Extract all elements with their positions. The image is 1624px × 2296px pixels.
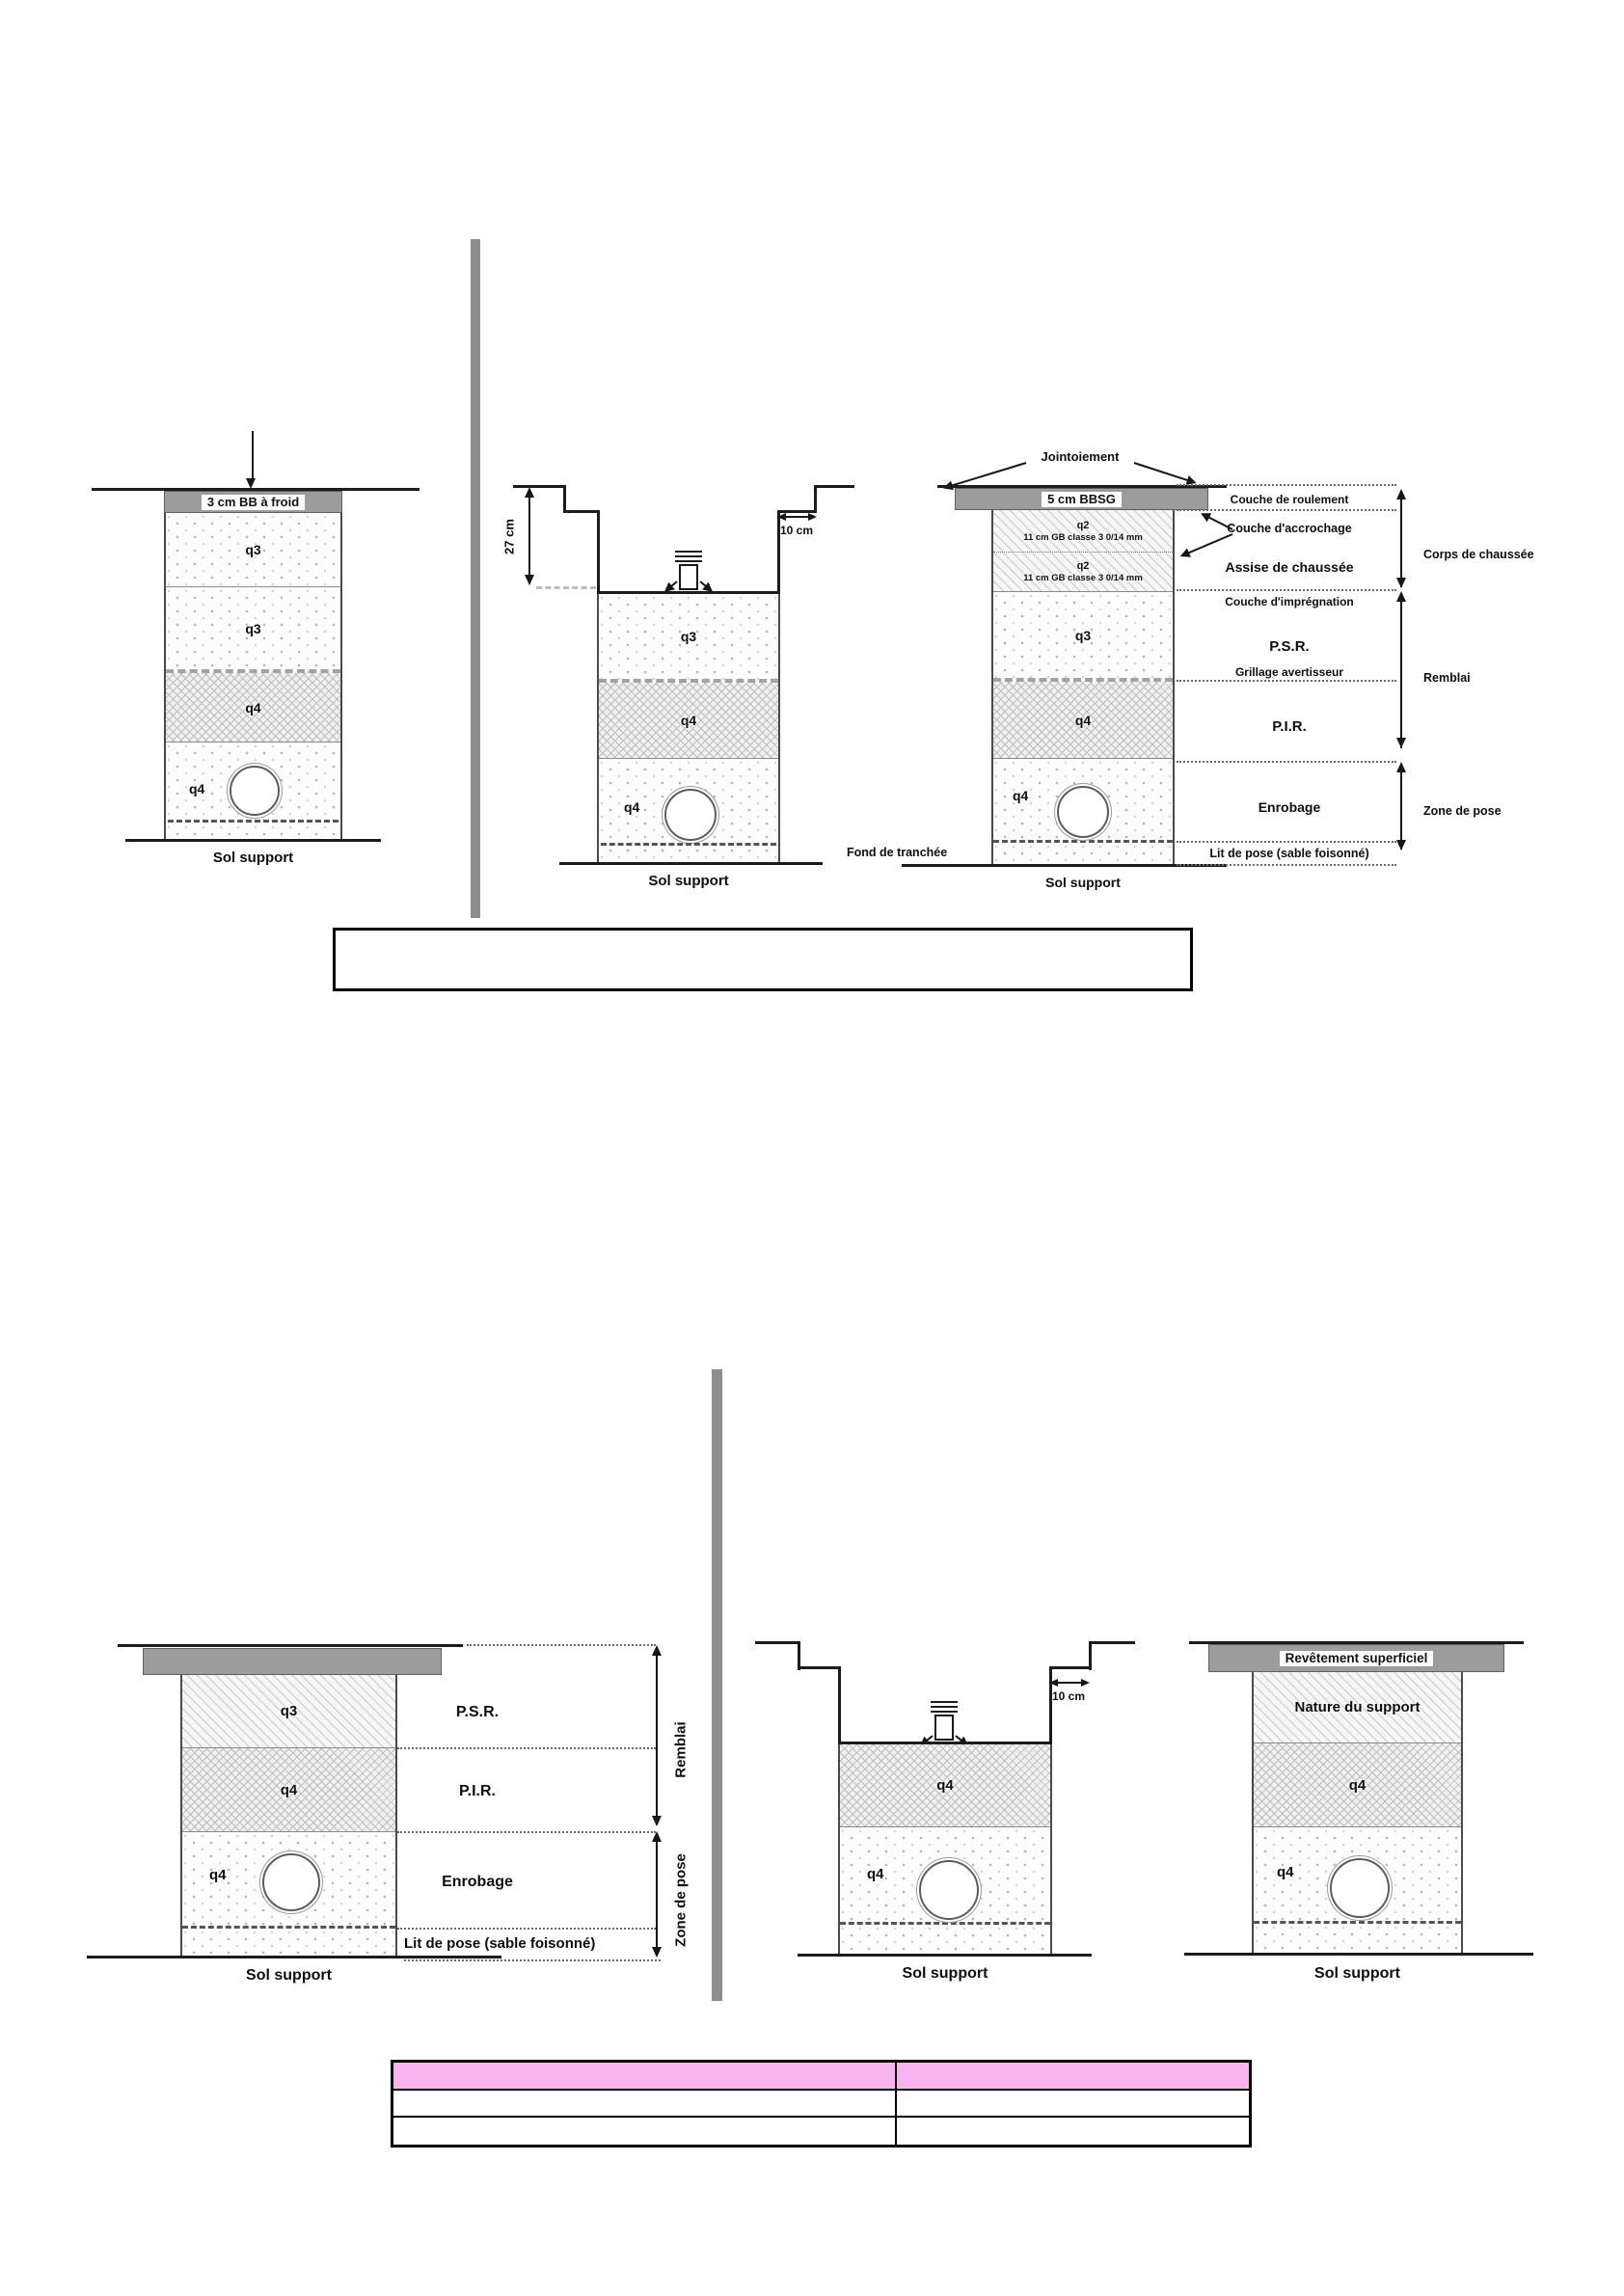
profile-line (814, 485, 817, 513)
layer-q4: q4 (1254, 1743, 1461, 1827)
profile-line (1089, 1641, 1135, 1644)
layer-q3: q3 (182, 1675, 395, 1748)
cap-label: 3 cm BB à froid (202, 495, 305, 510)
soil-class-label: q3 (681, 629, 696, 644)
profile-line (513, 485, 566, 488)
bracket-line (656, 1653, 658, 1819)
compactor-icon (679, 564, 698, 590)
dim-arrow-icon (1396, 738, 1406, 748)
side-label: Couche d'accrochage (1178, 522, 1400, 535)
sol-support-label: Sol support (1252, 1965, 1463, 1983)
ground-line (87, 1956, 501, 1958)
profile-line (814, 485, 854, 488)
excavation-level-dashes (536, 586, 596, 589)
dotted-separator (1177, 484, 1396, 486)
dim-arrow-icon (1396, 489, 1406, 500)
side-label: Couche d'imprégnation (1178, 595, 1400, 608)
compactor-icon (675, 551, 702, 553)
dotted-separator (1177, 680, 1396, 682)
dim-arrow-icon (1396, 762, 1406, 772)
pipe-icon (230, 766, 280, 816)
layer-q4: q4 (166, 673, 340, 743)
side-label: Assise de chaussée (1178, 559, 1400, 575)
layer-bedding (840, 1925, 1050, 1955)
layer-bedding (1254, 1924, 1461, 1954)
side-label: Grillage avertisseur (1178, 665, 1400, 679)
side-label: Enrobage (1178, 799, 1400, 815)
dotted-separator (1177, 864, 1396, 866)
compactor-icon (931, 1701, 958, 1703)
table-column-divider (895, 2063, 897, 2145)
dotted-separator (1177, 589, 1396, 591)
layer-q3: q3 (599, 594, 778, 683)
table-row (393, 2118, 1249, 2145)
side-label: Couche de roulement (1178, 493, 1400, 506)
accrochage-arrow-icon (1181, 533, 1232, 556)
sol-support-label: Sol support (164, 850, 342, 866)
dim-arrow-icon (777, 513, 786, 521)
ground-line (798, 1954, 1092, 1957)
layer-name-label: Lit de pose (sable foisonné) (404, 1935, 595, 1952)
layer-material-label: 11 cm GB classe 3 0/14 mm (1023, 532, 1143, 543)
pipe-icon (664, 789, 717, 841)
soil-class-label: q4 (1277, 1864, 1294, 1880)
cap-label: 5 cm BBSG (1042, 492, 1122, 507)
soil-class-label: q3 (245, 542, 260, 557)
layer-material-label: 11 cm GB classe 3 0/14 mm (1023, 573, 1143, 583)
jointoiement-arrow-icon (1134, 462, 1195, 483)
bracket-label: Remblai (1423, 671, 1471, 685)
layer-nature-support: Nature du support (1254, 1672, 1461, 1743)
sol-support-label: Sol support (991, 875, 1175, 890)
caption-box (333, 928, 1193, 991)
layer-name-label: Enrobage (410, 1874, 545, 1891)
sol-support-label: Sol support (597, 873, 780, 889)
pipe-icon (1330, 1858, 1390, 1918)
dotted-separator (1177, 509, 1396, 511)
compactor-icon (675, 560, 702, 562)
bedding-dashed-line (601, 843, 776, 846)
profile-line (563, 485, 566, 513)
bracket-label: Zone de pose (673, 1847, 690, 1955)
compaction-arrow-icon (665, 581, 678, 591)
profile-line (838, 1666, 841, 1744)
load-arrow-line (252, 431, 254, 481)
soil-class-label: q4 (936, 1777, 954, 1794)
compaction-arrow-icon (699, 581, 712, 591)
dim-arrow-icon (1396, 591, 1406, 602)
profile-line (1049, 1666, 1092, 1669)
soil-class-label: q4 (281, 1782, 298, 1798)
sol-support-label: Sol support (838, 1965, 1052, 1983)
bracket-line (1400, 600, 1402, 748)
soil-class-label: q4 (1349, 1777, 1367, 1794)
dim-label-10cm: 10 cm (771, 524, 822, 537)
side-label: Lit de pose (sable foisonné) (1178, 847, 1400, 860)
layer-q4: q4 (840, 1744, 1050, 1827)
dim-label-27cm: 27 cm (502, 504, 517, 570)
profile-line (755, 1641, 800, 1644)
ground-line (559, 862, 823, 865)
bracket-line (1400, 499, 1402, 587)
layer-name-label: Nature du support (1295, 1699, 1421, 1715)
trench-c: q2 11 cm GB classe 3 0/14 mm q2 11 cm GB… (991, 510, 1175, 866)
soil-class-label: q4 (209, 1867, 227, 1883)
bracket-label: Remblai (673, 1712, 690, 1789)
dotted-separator (397, 1747, 656, 1749)
layer-q2: q2 11 cm GB classe 3 0/14 mm (993, 510, 1173, 553)
layer-q3: q3 (166, 513, 340, 587)
sol-support-label: Sol support (180, 1967, 397, 1985)
dim-arrow-icon (1396, 840, 1406, 851)
compactor-icon (675, 555, 702, 557)
layer-q3: q3 (166, 587, 340, 673)
pipe-icon (1057, 786, 1109, 838)
profile-line (798, 1666, 841, 1669)
soil-class-label: q3 (1075, 628, 1091, 643)
layer-q4: q4 (599, 683, 778, 759)
layer-q4: q4 (182, 1748, 395, 1832)
dim-arrow-icon (652, 1816, 662, 1826)
profile-line (597, 510, 600, 594)
layer-q3: q3 (993, 592, 1173, 682)
dotted-separator (397, 1928, 656, 1930)
layer-q2: q2 11 cm GB classe 3 0/14 mm (993, 553, 1173, 592)
dotted-separator (467, 1644, 656, 1646)
bracket-label: Corps de chaussée (1423, 548, 1534, 561)
layer-name-label: P.S.R. (410, 1704, 545, 1721)
layer-bedding (182, 1929, 395, 1958)
jointoiement-label: Jointoiement (1020, 449, 1140, 464)
layer-q4-pipe: q4 (840, 1827, 1050, 1925)
dotted-separator (404, 1959, 661, 1961)
surface-cap: Revêtement superficiel (1208, 1644, 1504, 1672)
bracket-line (656, 1842, 658, 1948)
soil-class-label: q4 (624, 799, 639, 815)
dim-arrow-icon (525, 575, 534, 585)
dim-arrow-icon (1049, 1679, 1058, 1687)
trench-b: q3 q4 q4 (597, 594, 780, 862)
layer-q4-pipe: q4 (182, 1832, 395, 1929)
layer-name-label: P.I.R. (410, 1783, 545, 1800)
table-header-row (393, 2063, 1249, 2091)
soil-class-label: q2 (1077, 520, 1090, 532)
dotted-separator (1177, 761, 1396, 763)
side-label: P.S.R. (1178, 638, 1400, 655)
dotted-separator (1177, 841, 1396, 843)
document-page: 3 cm BB à froid q3 q3 q4 q4 Sol support … (0, 0, 1624, 2296)
side-label: P.I.R. (1178, 718, 1400, 735)
bracket-line (1400, 770, 1402, 850)
trench-f: Nature du support q4 q4 (1252, 1672, 1463, 1954)
ground-line (118, 1644, 463, 1647)
pipe-icon (262, 1853, 320, 1911)
layer-q4-pipe: q4 (166, 743, 340, 841)
surface-cap: 5 cm BBSG (955, 488, 1208, 510)
ground-line (125, 839, 381, 842)
soil-class-label: q4 (189, 781, 204, 797)
bedding-dashed-line (168, 820, 338, 823)
layer-q4: q4 (993, 682, 1173, 759)
section-divider-bar-top (471, 239, 480, 918)
dim-arrow-icon (1396, 578, 1406, 588)
trench-d: q3 q4 q4 (180, 1675, 397, 1958)
dim-arrow-icon (652, 1947, 662, 1958)
trench-a: q3 q3 q4 q4 (164, 513, 342, 841)
soil-class-label: q4 (867, 1866, 884, 1882)
pipe-icon (919, 1860, 979, 1920)
fond-tranchee-label: Fond de tranchée (847, 846, 947, 859)
compactor-icon (934, 1715, 954, 1741)
layer-q4-pipe: q4 (1254, 1827, 1461, 1924)
table-row (393, 2091, 1249, 2118)
dotted-separator (397, 1831, 656, 1833)
dim-arrow-icon (1081, 1679, 1090, 1687)
data-table (391, 2060, 1252, 2147)
bracket-label: Zone de pose (1423, 804, 1502, 818)
dim-arrow-icon (652, 1831, 662, 1842)
soil-class-label: q4 (1075, 713, 1091, 728)
surface-cap: 3 cm BB à froid (164, 491, 342, 513)
dim-arrow-icon (808, 513, 817, 521)
soil-class-label: q3 (245, 621, 260, 636)
compactor-icon (931, 1706, 958, 1708)
section-divider-bar-bottom (712, 1369, 722, 2001)
soil-class-label: q3 (281, 1703, 298, 1719)
dim-arrow-icon (652, 1645, 662, 1656)
soil-class-label: q2 (1077, 560, 1090, 573)
layer-q4-pipe: q4 (599, 759, 778, 862)
dim-label-10cm: 10 cm (1043, 1689, 1094, 1703)
soil-class-label: q4 (245, 700, 260, 716)
soil-class-label: q4 (681, 713, 696, 728)
profile-line (563, 510, 600, 513)
surface-cap (143, 1648, 442, 1675)
compactor-icon (931, 1711, 958, 1713)
cap-label: Revêtement superficiel (1280, 1651, 1434, 1666)
soil-class-label: q4 (1013, 788, 1028, 803)
layer-q4-pipe: q4 (993, 759, 1173, 843)
ground-line (1184, 1953, 1533, 1956)
profile-line (1089, 1641, 1092, 1670)
dim-line-27cm (528, 491, 530, 580)
dim-arrow-icon (525, 487, 534, 498)
trench-e: q4 q4 (838, 1744, 1052, 1955)
layer-bedding (993, 843, 1173, 866)
